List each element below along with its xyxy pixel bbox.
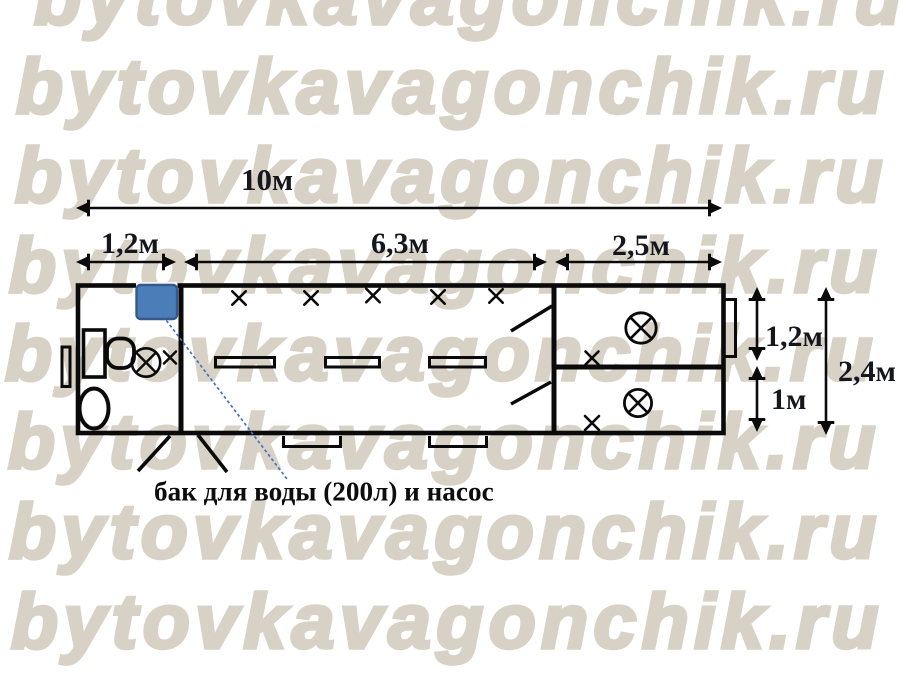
svg-text:1,2м: 1,2м (765, 320, 823, 353)
svg-text:2,5м: 2,5м (612, 229, 670, 262)
svg-text:бак для воды (200л) и насос: бак для воды (200л) и насос (154, 477, 494, 507)
svg-text:bytovkavagonchik.ru: bytovkavagonchik.ru (34, 0, 900, 41)
svg-text:bytovkavagonchik.ru: bytovkavagonchik.ru (8, 399, 881, 485)
svg-text:10м: 10м (241, 162, 293, 197)
svg-text:1м: 1м (771, 383, 806, 416)
svg-text:2,4м: 2,4м (838, 355, 896, 388)
svg-text:6,3м: 6,3м (371, 227, 429, 260)
svg-text:1,2м: 1,2м (101, 227, 159, 260)
svg-text:bytovkavagonchik.ru: bytovkavagonchik.ru (15, 133, 888, 219)
svg-text:bytovkavagonchik.ru: bytovkavagonchik.ru (16, 44, 889, 130)
svg-text:bytovkavagonchik.ru: bytovkavagonchik.ru (11, 579, 884, 665)
